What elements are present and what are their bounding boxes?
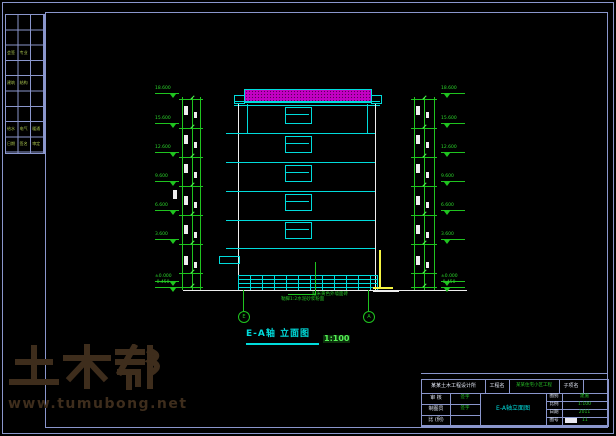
dimension-chain-line	[182, 97, 183, 290]
dimension-text-blob	[416, 106, 420, 115]
ramp-step-line	[373, 291, 399, 292]
axis-label: E	[242, 315, 245, 320]
roof-edge-line	[234, 101, 380, 106]
roof-end-cap-left	[234, 95, 245, 104]
dimension-chain-line	[200, 97, 201, 290]
parapet-line-right	[367, 104, 368, 133]
dimension-text-blob	[173, 190, 177, 199]
material-leader-line	[315, 262, 316, 295]
entrance-step-left	[219, 256, 240, 264]
scale-value: 1:100	[578, 403, 591, 408]
title-block-top-line	[421, 373, 608, 374]
dimension-tick	[411, 186, 437, 187]
dimension-text-blob	[184, 225, 188, 234]
building-edge-right	[375, 104, 376, 290]
sheet-no-label-cell: 图号	[546, 417, 563, 426]
window-mullion	[286, 172, 309, 173]
sheet-no-value: 11	[582, 419, 588, 424]
level-marker: 12.600	[441, 152, 465, 158]
dimension-tick	[411, 273, 437, 274]
dimension-text-blob	[416, 256, 420, 265]
material-note-2: 勒脚1:2水泥砂浆粉面	[281, 298, 324, 303]
level-value: 12.600	[441, 146, 457, 151]
level-marker: 6.600	[155, 210, 179, 216]
level-value: 6.600	[155, 204, 168, 209]
level-marker: 9.600	[155, 181, 179, 187]
level-value: 3.600	[155, 233, 168, 238]
level-marker: -0.450	[155, 287, 179, 293]
level-value: -0.450	[441, 281, 456, 286]
dimension-tick	[411, 128, 437, 129]
design-unit-name: 某某土木工程设计所	[431, 384, 476, 389]
dimension-chain-line	[414, 97, 415, 290]
level-marker: 15.600	[155, 123, 179, 129]
level-value: 18.600	[441, 87, 457, 92]
cad-drawing-sheet: 会签专业建筑结构给水电气暖通日期签名审定 贴米黄色外墙面砖勒脚1:2水泥砂浆粉面…	[0, 0, 616, 436]
dimension-tick	[411, 157, 437, 158]
level-value: 12.600	[155, 146, 171, 151]
ratio-value-cell	[450, 415, 481, 426]
level-triangle-icon	[444, 288, 450, 292]
watermark-url: www.tumubong.net	[8, 396, 188, 412]
window-mullion	[286, 114, 309, 115]
drawing-title-underline	[246, 343, 319, 345]
sheet-no-box	[565, 418, 577, 423]
date-label: 日期	[550, 411, 559, 416]
level-marker: 18.600	[441, 93, 465, 99]
floor-line-stub	[226, 248, 238, 249]
drawing-title: E-A轴 立面图	[246, 330, 310, 339]
design-unit-cell: 某某土木工程设计所	[422, 380, 486, 394]
window	[285, 222, 312, 239]
level-triangle-icon	[170, 211, 176, 215]
level-value: 9.600	[155, 175, 168, 180]
level-marker: 3.600	[155, 239, 179, 245]
ratio-label-cell: 比 (例)	[422, 415, 451, 426]
floor-line-stub	[226, 191, 238, 192]
window-mullion	[286, 143, 309, 144]
sheet-type-value: 建施	[580, 395, 589, 400]
drawing-scale: 1:100	[323, 335, 350, 343]
level-value: 18.600	[155, 87, 171, 92]
level-triangle-icon	[444, 124, 450, 128]
ramp-highlight-vertical	[379, 250, 381, 288]
floor-line	[238, 248, 375, 249]
floor-line-stub	[226, 162, 238, 163]
floor-line	[238, 133, 375, 134]
parapet-line-left	[247, 104, 248, 133]
plinth-brick-band	[238, 275, 378, 291]
level-triangle-icon	[170, 182, 176, 186]
floor-line	[238, 191, 375, 192]
axis-bubble: A	[363, 311, 375, 323]
dimension-tick	[411, 99, 437, 100]
material-leader-tail	[288, 294, 315, 295]
auditor-signature: 签字	[461, 396, 470, 401]
dimension-text-blob	[184, 106, 188, 115]
dimension-text-blob	[194, 112, 197, 118]
dimension-text-blob	[426, 232, 429, 238]
dimension-tick	[411, 244, 437, 245]
ramp-highlight-base	[373, 287, 393, 289]
sheet-no-label: 图号	[550, 419, 559, 424]
level-value: 15.600	[441, 117, 457, 122]
level-marker: 6.600	[441, 210, 465, 216]
dimension-text-blob	[184, 256, 188, 265]
level-triangle-icon	[444, 211, 450, 215]
dimension-text-blob	[426, 172, 429, 178]
level-value: ±0.000	[155, 275, 172, 280]
window	[285, 194, 312, 211]
dimension-text-blob	[426, 112, 429, 118]
axis-stem-line	[243, 290, 244, 311]
dimension-text-blob	[194, 202, 197, 208]
project-name-cell: 某某住宅小区工程	[509, 380, 560, 394]
level-value: 9.600	[441, 175, 454, 180]
dimension-chain-line	[434, 97, 435, 290]
drawing-name-cell: E-A轴立面图	[480, 393, 547, 426]
level-marker: 18.600	[155, 93, 179, 99]
dimension-tick	[411, 215, 437, 216]
dimension-text-blob	[416, 135, 420, 144]
level-marker: 12.600	[155, 152, 179, 158]
subproject-label: 子项名	[563, 384, 578, 389]
project-label-cell: 工程名	[485, 380, 510, 394]
scale-label: 比例	[550, 403, 559, 408]
window-mullion	[286, 201, 309, 202]
auditor-label: 审 核	[430, 396, 442, 401]
window	[285, 107, 312, 124]
dimension-text-blob	[194, 172, 197, 178]
level-triangle-icon	[444, 153, 450, 157]
level-marker: 9.600	[441, 181, 465, 187]
floor-line	[238, 220, 375, 221]
level-triangle-icon	[170, 94, 176, 98]
roof-end-cap-right	[371, 95, 382, 104]
level-triangle-icon	[170, 153, 176, 157]
dimension-text-blob	[194, 142, 197, 148]
dimension-text-blob	[416, 164, 420, 173]
ratio-label: 比 (例)	[428, 418, 444, 423]
sheet-no-value-cell: 11	[562, 417, 608, 426]
level-value: -0.450	[155, 281, 170, 286]
drafter-label: 制图员	[428, 407, 443, 412]
drafter-signature: 签字	[461, 407, 470, 412]
dimension-text-blob	[416, 196, 420, 205]
level-value: ±0.000	[441, 275, 458, 280]
level-triangle-icon	[444, 94, 450, 98]
level-value: 6.600	[441, 204, 454, 209]
window	[285, 136, 312, 153]
project-name: 某某住宅小区工程	[516, 384, 552, 389]
dimension-text-blob	[194, 232, 197, 238]
level-marker: -0.450	[441, 287, 465, 293]
project-label: 工程名	[489, 384, 504, 389]
subproject-label-cell: 子项名	[559, 380, 584, 394]
level-triangle-icon	[170, 240, 176, 244]
window-mullion	[286, 229, 309, 230]
dimension-tick	[411, 287, 437, 288]
dimension-text-blob	[194, 262, 197, 268]
level-marker: 15.600	[441, 123, 465, 129]
level-marker: 3.600	[441, 239, 465, 245]
axis-bubble: E	[238, 311, 250, 323]
dimension-text-blob	[184, 135, 188, 144]
dimension-text-blob	[416, 225, 420, 234]
axis-stem-line	[368, 290, 369, 311]
dimension-text-blob	[426, 262, 429, 268]
drawing-name: E-A轴立面图	[496, 406, 530, 412]
floor-line-stub	[226, 133, 238, 134]
level-triangle-icon	[170, 124, 176, 128]
ground-line	[183, 290, 467, 291]
dimension-text-blob	[184, 164, 188, 173]
dimension-text-blob	[184, 196, 188, 205]
floor-line-stub	[226, 220, 238, 221]
dimension-text-blob	[426, 202, 429, 208]
watermark: www.tumubong.net	[8, 344, 188, 412]
level-triangle-icon	[444, 240, 450, 244]
window	[285, 165, 312, 182]
subproject-value-cell	[583, 380, 608, 394]
title-block: 某某土木工程设计所 工程名 某某住宅小区工程 子项名 审 核 签字 制图员 签字…	[421, 379, 609, 427]
dimension-text-blob	[426, 142, 429, 148]
level-value: 15.600	[155, 117, 171, 122]
tumubang-logo-icon	[8, 344, 166, 390]
level-triangle-icon	[444, 182, 450, 186]
date-value: 2011	[579, 411, 590, 416]
floor-line	[238, 162, 375, 163]
axis-label: A	[367, 315, 370, 320]
sheet-type-label: 图别	[550, 395, 559, 400]
level-value: 3.600	[441, 233, 454, 238]
level-triangle-icon	[170, 282, 176, 286]
level-triangle-icon	[170, 288, 176, 292]
